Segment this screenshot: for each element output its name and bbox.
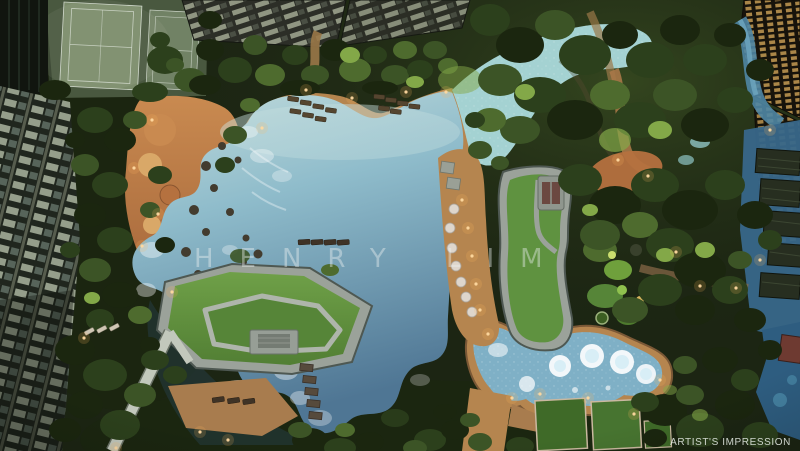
- render-canvas: [0, 0, 800, 451]
- watermark-text: HENRY LIM: [194, 244, 569, 274]
- artists-impression-caption: ARTIST'S IMPRESSION: [670, 437, 791, 448]
- aerial-render: HENRY LIM ARTIST'S IMPRESSION: [0, 0, 800, 451]
- topleft-wall: [0, 0, 48, 94]
